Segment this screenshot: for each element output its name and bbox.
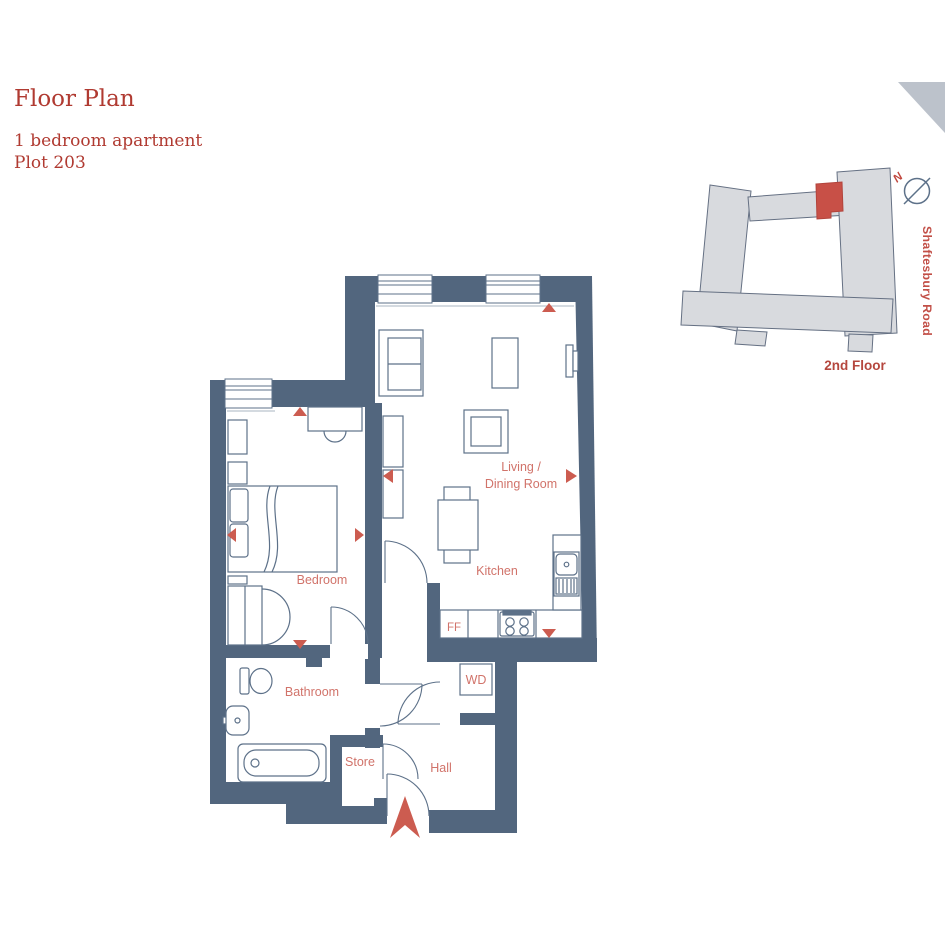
tv-unit [566, 345, 578, 377]
built-in-wardrobe [228, 586, 290, 645]
site-map-bump [735, 330, 767, 346]
north-label: N [891, 170, 906, 185]
floor-plan-page: { "header": { "title": "Floor Plan", "su… [0, 0, 945, 945]
bedroom-door-opening [330, 644, 368, 659]
label-store: Store [345, 755, 375, 769]
label-living-line1: Living / [501, 460, 541, 474]
dimension-marker-up [542, 303, 556, 312]
bathtub-icon [238, 744, 326, 782]
label-washer-dryer: WD [466, 673, 487, 687]
sofa [379, 330, 423, 396]
living-window-right [486, 275, 540, 303]
label-hall: Hall [430, 761, 452, 775]
living-room-door [385, 541, 427, 583]
site-map-bottom-wing [681, 291, 893, 333]
bathroom-door-opening [364, 684, 381, 728]
cabinet [383, 416, 403, 467]
living-window-left [378, 275, 432, 303]
label-kitchen: Kitchen [476, 564, 518, 578]
label-living-line2: Dining Room [485, 477, 557, 491]
site-map [681, 168, 897, 352]
dimension-marker-right [355, 528, 364, 542]
north-compass-icon: N [891, 170, 930, 204]
corner-triangle-decoration [898, 82, 945, 133]
bedside-unit [228, 462, 247, 484]
armchair [464, 410, 508, 453]
floor-plan-svg: N Shaftesbury Road 2nd Floor [0, 0, 945, 945]
bedroom-door [331, 607, 368, 644]
label-bedroom: Bedroom [297, 573, 348, 587]
basin-icon [223, 706, 249, 735]
hob-icon [500, 611, 534, 636]
toilet-icon [240, 668, 272, 694]
floor-level-label: 2nd Floor [824, 358, 886, 373]
dining-table [438, 487, 478, 563]
bedside-unit [228, 576, 247, 584]
desk-and-chair [308, 407, 362, 442]
wardrobe [228, 420, 247, 454]
sink-icon [554, 552, 579, 596]
double-bed [228, 486, 337, 572]
road-label: Shaftesbury Road [920, 226, 934, 336]
bedroom-window [225, 379, 272, 408]
label-bathroom: Bathroom [285, 685, 339, 699]
dimension-marker-right [566, 469, 577, 483]
label-fridge-freezer: FF [447, 622, 461, 634]
site-map-bump [848, 334, 873, 352]
coffee-table [492, 338, 518, 388]
dimension-marker-up [293, 407, 307, 416]
entrance-arrow [390, 796, 420, 838]
